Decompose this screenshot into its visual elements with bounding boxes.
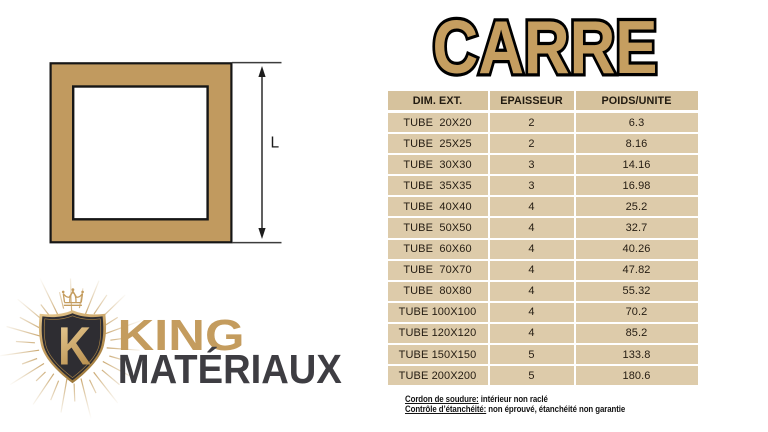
svg-text:MATÉRIAUX: MATÉRIAUX bbox=[118, 346, 342, 392]
svg-text:L: L bbox=[271, 135, 280, 152]
svg-text:CARRE: CARRE bbox=[433, 5, 658, 85]
svg-text:K: K bbox=[58, 317, 91, 377]
